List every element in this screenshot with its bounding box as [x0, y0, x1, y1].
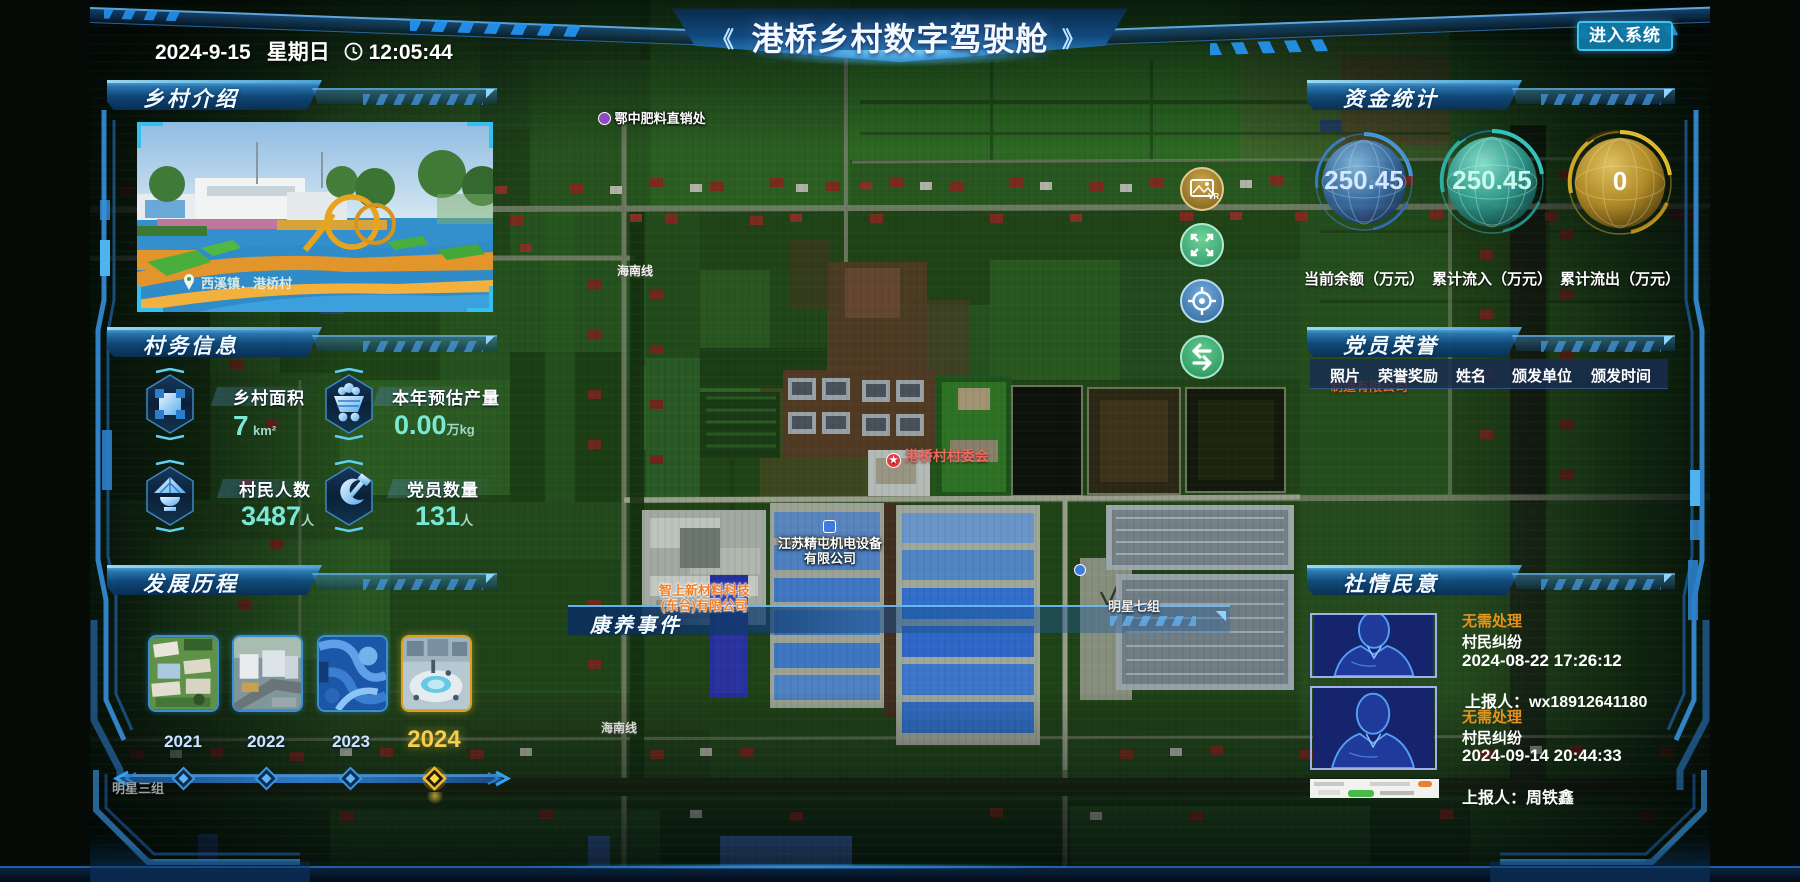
svg-text:VR: VR	[1208, 192, 1219, 201]
svg-text:西溪镇．港桥村: 西溪镇．港桥村	[201, 276, 292, 291]
svg-text:250.45: 250.45	[1324, 165, 1404, 195]
svg-text:0: 0	[1613, 166, 1627, 196]
svg-text:250.45: 250.45	[1452, 165, 1532, 195]
